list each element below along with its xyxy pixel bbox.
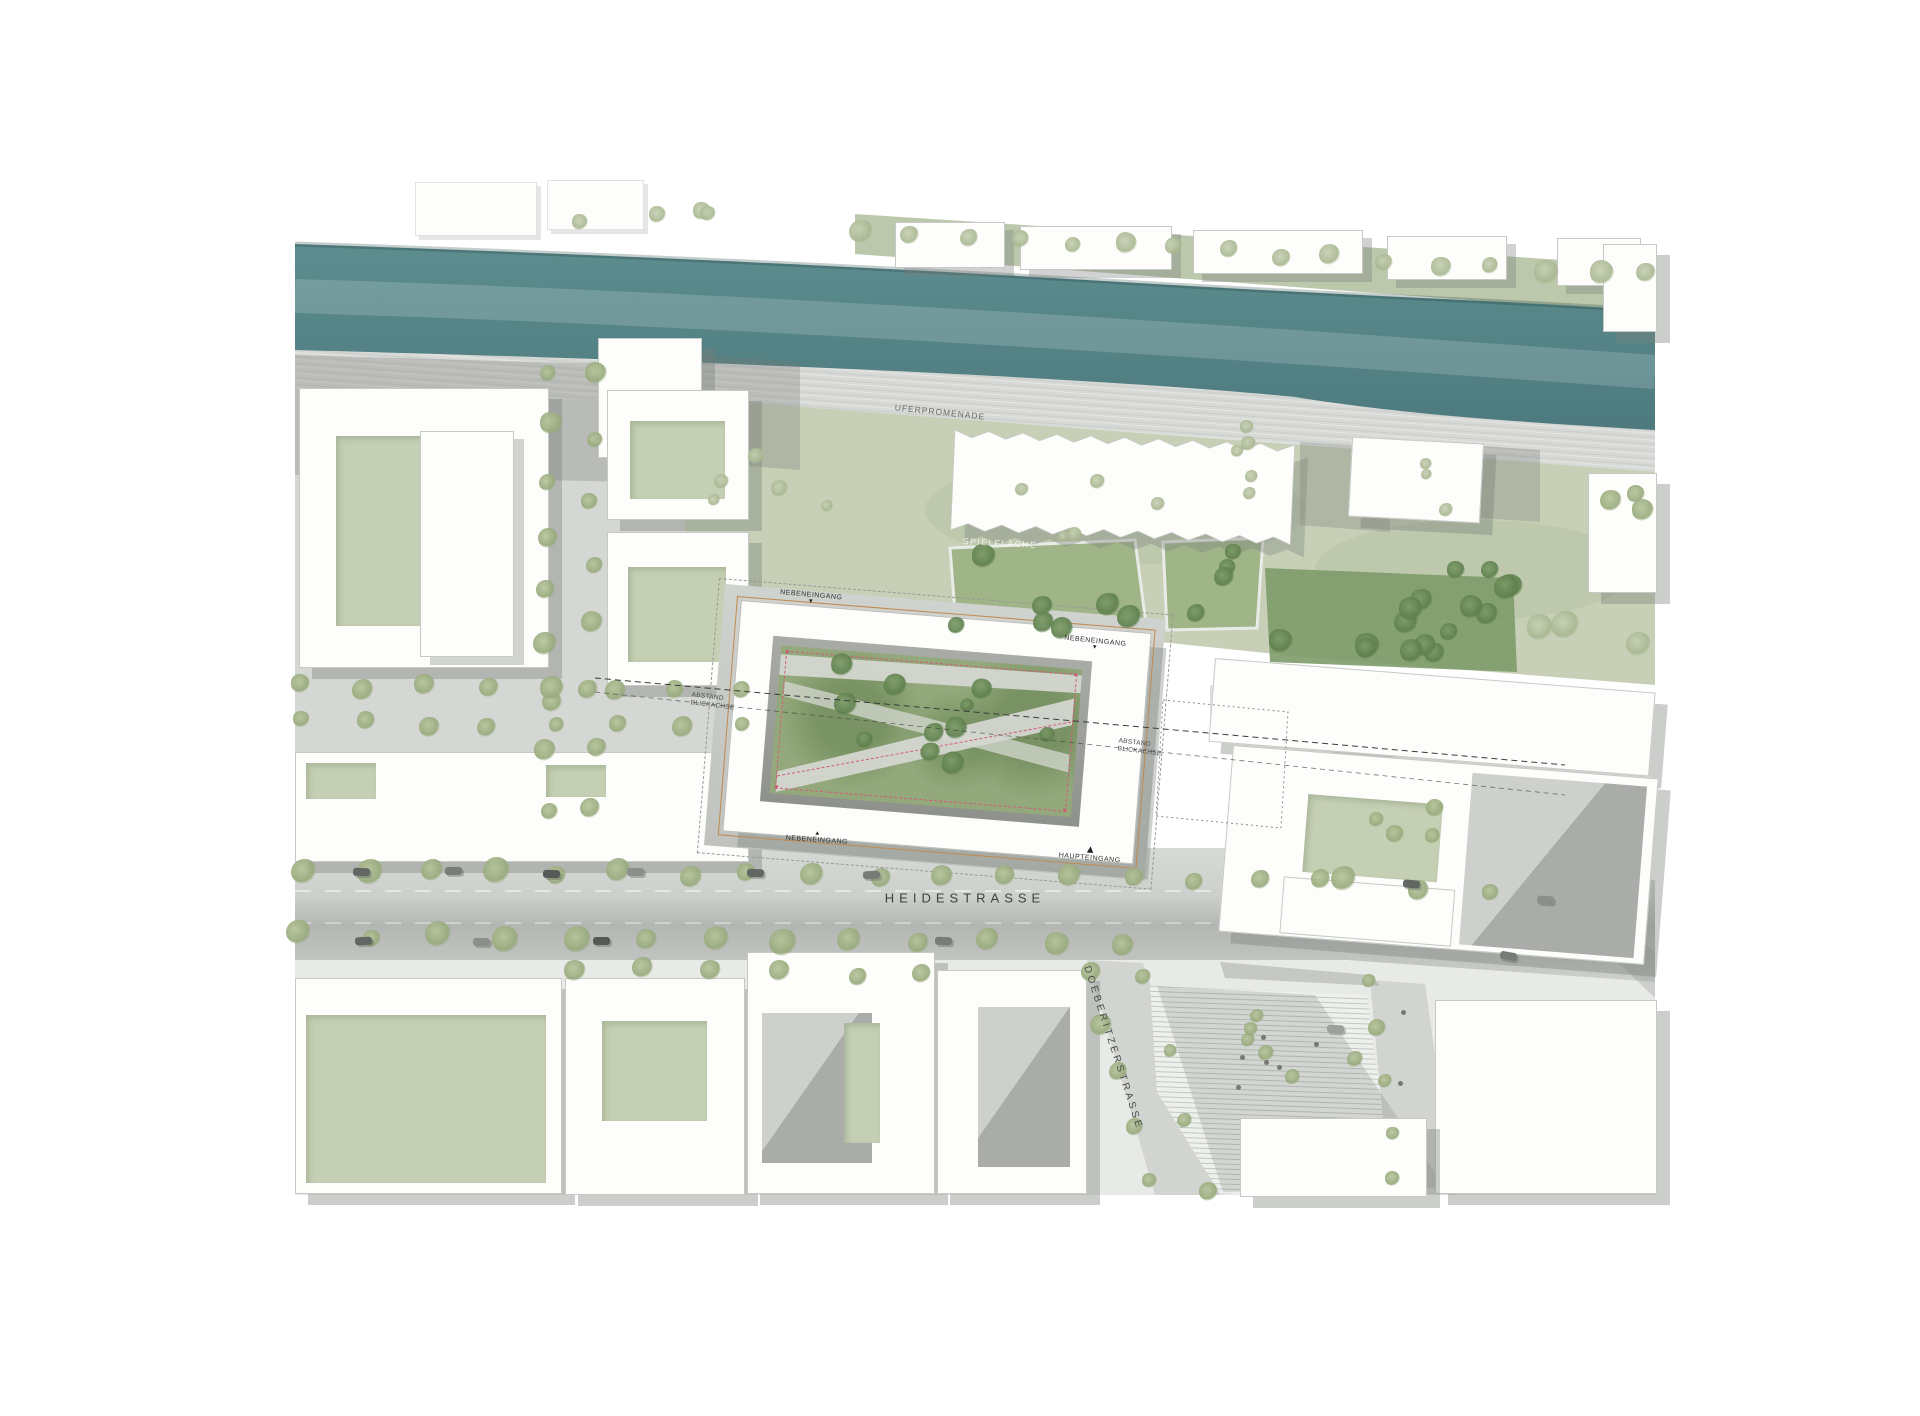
tree-icon	[1243, 487, 1256, 500]
tree-icon	[1187, 604, 1206, 623]
tree-icon	[534, 739, 556, 761]
car-icon	[747, 869, 764, 878]
tree-icon	[1378, 1074, 1392, 1088]
site-plan-page: ▲ ▼ ▲ ▼ HEIDESTRASSE DOEBERITZERSTRASSE …	[0, 0, 1920, 1416]
tree-icon	[948, 617, 964, 633]
tree-icon	[477, 718, 496, 737]
vegetation-layer	[295, 180, 1655, 1195]
bench-dot	[1261, 1035, 1266, 1040]
tree-icon	[1258, 1045, 1275, 1062]
tree-icon	[995, 865, 1016, 886]
tree-icon	[1426, 799, 1444, 817]
tree-icon	[1245, 470, 1258, 483]
tree-icon	[1385, 1171, 1400, 1186]
tree-icon	[1421, 469, 1432, 480]
tree-icon	[1368, 1019, 1386, 1037]
tree-icon	[605, 680, 626, 701]
tree-icon	[1165, 237, 1183, 255]
car-icon	[445, 867, 462, 875]
tree-icon	[572, 214, 587, 229]
entrance-arrow-icon: ▼	[1091, 645, 1097, 650]
tree-icon	[912, 964, 931, 983]
tree-icon	[1033, 612, 1054, 633]
tree-icon	[564, 926, 591, 953]
tree-icon	[1386, 825, 1404, 843]
car-icon	[627, 868, 644, 876]
tree-icon	[414, 674, 435, 695]
tree-icon	[704, 926, 728, 950]
tree-icon	[1447, 561, 1466, 580]
tree-icon	[352, 679, 373, 700]
car-icon	[543, 870, 560, 878]
tree-icon	[1090, 474, 1105, 489]
tree-icon	[1362, 974, 1377, 989]
tree-icon	[1116, 232, 1137, 253]
tree-icon	[735, 717, 750, 732]
tree-icon	[587, 432, 603, 448]
tree-icon	[769, 929, 796, 956]
tree-icon	[564, 960, 585, 981]
tree-icon	[291, 859, 316, 884]
tree-icon	[609, 715, 627, 733]
bench-dot	[1314, 1042, 1319, 1047]
tree-icon	[286, 920, 310, 944]
tree-icon	[636, 929, 657, 950]
tree-icon	[700, 960, 721, 981]
tree-icon	[1494, 575, 1519, 600]
tree-icon	[900, 226, 918, 244]
tree-icon	[421, 859, 443, 881]
tree-icon	[291, 674, 310, 693]
tree-icon	[821, 500, 834, 513]
bench-dot	[1398, 1081, 1403, 1086]
tree-icon	[769, 960, 790, 981]
tree-icon	[1527, 614, 1553, 640]
tree-icon	[771, 480, 788, 497]
tree-icon	[538, 528, 558, 548]
bench-dot	[1264, 1060, 1269, 1065]
tree-icon	[533, 632, 557, 656]
tree-icon	[1375, 254, 1393, 272]
car-icon	[935, 937, 952, 946]
tree-icon	[1319, 244, 1340, 265]
bench-dot	[1277, 1065, 1282, 1070]
tree-icon	[837, 928, 861, 952]
tree-icon	[1386, 1127, 1400, 1141]
car-icon	[1403, 879, 1421, 888]
site-plan-map: ▲ ▼ ▲ ▼ HEIDESTRASSE DOEBERITZERSTRASSE …	[295, 180, 1655, 1195]
tree-icon	[580, 798, 600, 818]
tree-icon	[960, 229, 978, 247]
tree-icon	[1482, 884, 1499, 901]
tree-icon	[748, 448, 764, 464]
tree-icon	[536, 580, 555, 599]
tree-icon	[585, 362, 607, 384]
tree-icon	[1311, 869, 1331, 889]
tree-icon	[1250, 1009, 1264, 1023]
tree-icon	[1482, 257, 1499, 274]
car-icon	[353, 868, 370, 877]
tree-icon	[293, 711, 310, 728]
tree-icon	[581, 611, 602, 632]
tree-icon	[1439, 503, 1453, 517]
tree-icon	[700, 206, 716, 222]
tree-icon	[1067, 527, 1082, 542]
tree-icon	[849, 220, 873, 244]
tree-icon	[931, 865, 953, 887]
tree-icon	[1272, 249, 1291, 268]
tree-icon	[1125, 868, 1144, 887]
tree-icon	[1632, 499, 1654, 521]
tree-icon	[1425, 828, 1440, 843]
tree-icon	[1220, 240, 1238, 258]
tree-icon	[649, 206, 666, 223]
tree-icon	[800, 863, 823, 886]
tree-icon	[419, 717, 440, 738]
tree-icon	[1356, 638, 1377, 659]
bench-dot	[1240, 1055, 1245, 1060]
tree-icon	[1112, 934, 1134, 956]
tree-icon	[581, 493, 598, 510]
tree-icon	[1065, 237, 1081, 253]
tree-icon	[1214, 567, 1234, 587]
tree-icon	[1240, 420, 1254, 434]
tree-icon	[708, 494, 720, 506]
tree-icon	[672, 716, 693, 737]
tree-icon	[586, 557, 603, 574]
tree-icon	[587, 738, 606, 757]
tree-icon	[1164, 1044, 1177, 1057]
tree-icon	[578, 680, 598, 700]
tree-icon	[1015, 483, 1028, 496]
tree-icon	[539, 474, 556, 491]
tree-icon	[1636, 263, 1655, 282]
car-icon	[863, 871, 880, 880]
tree-icon	[1347, 1051, 1363, 1067]
tree-icon	[1440, 623, 1458, 641]
tree-icon	[1135, 969, 1151, 985]
tree-icon	[1117, 605, 1141, 629]
tree-icon	[549, 717, 565, 733]
tree-icon	[666, 680, 685, 699]
tree-icon	[1400, 639, 1424, 663]
tree-icon	[1331, 866, 1356, 891]
tree-icon	[1399, 597, 1423, 621]
tree-icon	[1600, 490, 1622, 512]
car-icon	[355, 937, 372, 946]
tree-icon	[483, 857, 510, 884]
tree-icon	[680, 866, 702, 888]
tree-icon	[1269, 629, 1293, 653]
car-icon	[1327, 1025, 1344, 1034]
tree-icon	[1431, 257, 1452, 278]
tree-icon	[1225, 544, 1242, 561]
tree-icon	[1534, 260, 1558, 284]
tree-icon	[479, 678, 499, 698]
tree-icon	[1285, 1069, 1301, 1085]
tree-icon	[714, 474, 729, 489]
tree-icon	[1012, 230, 1030, 248]
tree-icon	[1199, 1182, 1218, 1201]
tree-icon	[540, 412, 562, 434]
tree-icon	[1185, 873, 1203, 891]
tree-icon	[976, 928, 999, 951]
tree-icon	[1251, 870, 1270, 889]
tree-icon	[1058, 864, 1081, 887]
car-icon	[1499, 951, 1517, 962]
tree-icon	[1045, 932, 1069, 956]
tree-icon	[1481, 561, 1499, 579]
tree-icon	[540, 365, 557, 382]
car-icon	[473, 938, 490, 946]
tree-icon	[1626, 632, 1651, 657]
tree-icon	[1551, 611, 1579, 639]
entrance-arrow-icon: ▼	[807, 599, 813, 604]
tree-icon	[541, 803, 558, 820]
tree-icon	[540, 676, 564, 700]
tree-icon	[1142, 1173, 1157, 1188]
car-icon	[593, 937, 610, 945]
tree-icon	[425, 921, 451, 947]
tree-icon	[1177, 1113, 1192, 1128]
tree-icon	[849, 968, 867, 986]
bench-dot	[1236, 1085, 1241, 1090]
tree-icon	[1590, 260, 1614, 284]
street-label-heidestrasse: HEIDESTRASSE	[885, 891, 1045, 906]
tree-icon	[1420, 458, 1433, 471]
tree-icon	[632, 957, 652, 977]
car-icon	[1537, 895, 1555, 904]
tree-icon	[1244, 1022, 1258, 1036]
tree-icon	[357, 711, 375, 729]
tree-icon	[1151, 497, 1166, 512]
tree-icon	[492, 926, 519, 953]
tree-icon	[1369, 812, 1384, 827]
tree-icon	[606, 858, 630, 882]
tree-icon	[1231, 445, 1244, 458]
tree-icon	[908, 933, 929, 954]
bench-dot	[1401, 1010, 1406, 1015]
